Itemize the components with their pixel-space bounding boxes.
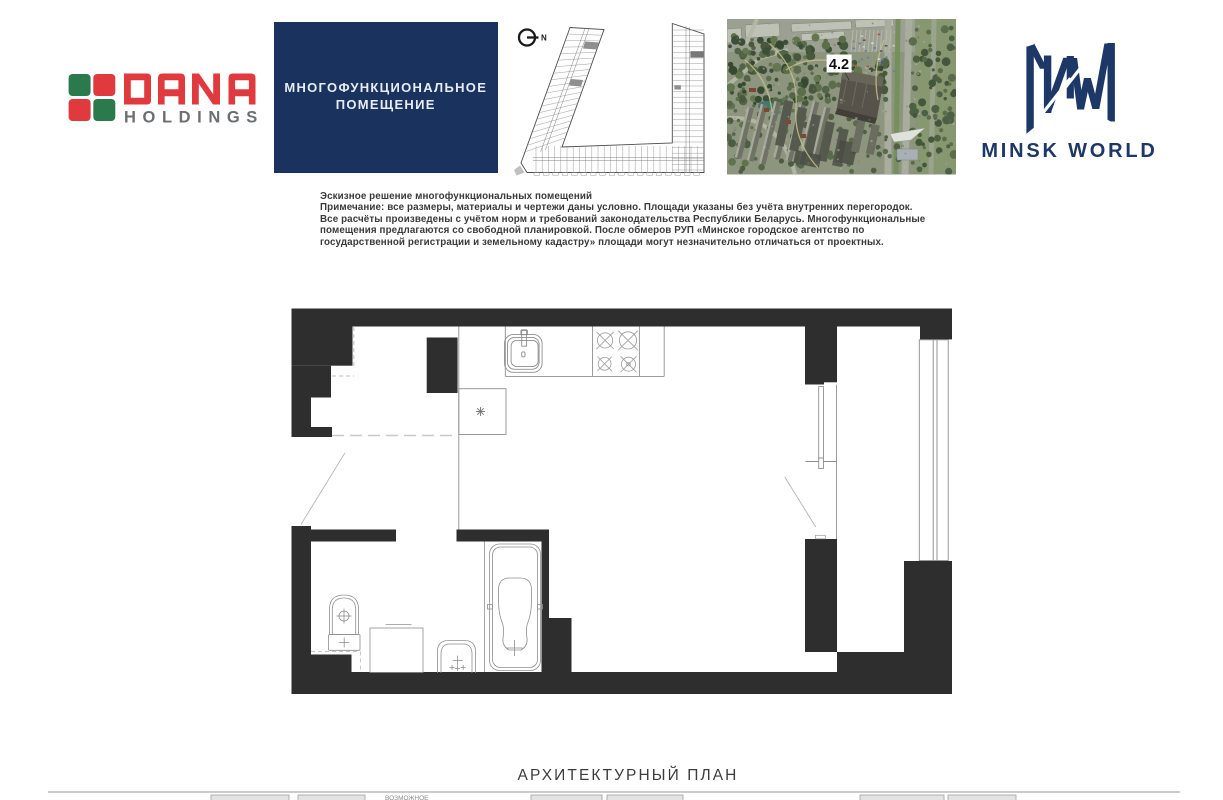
svg-text:ВОЗМОЖНОЕ: ВОЗМОЖНОЕ — [385, 795, 429, 800]
svg-text:N: N — [541, 34, 547, 43]
svg-text:4.2: 4.2 — [829, 57, 849, 73]
svg-text:HOLDINGS: HOLDINGS — [124, 109, 264, 127]
